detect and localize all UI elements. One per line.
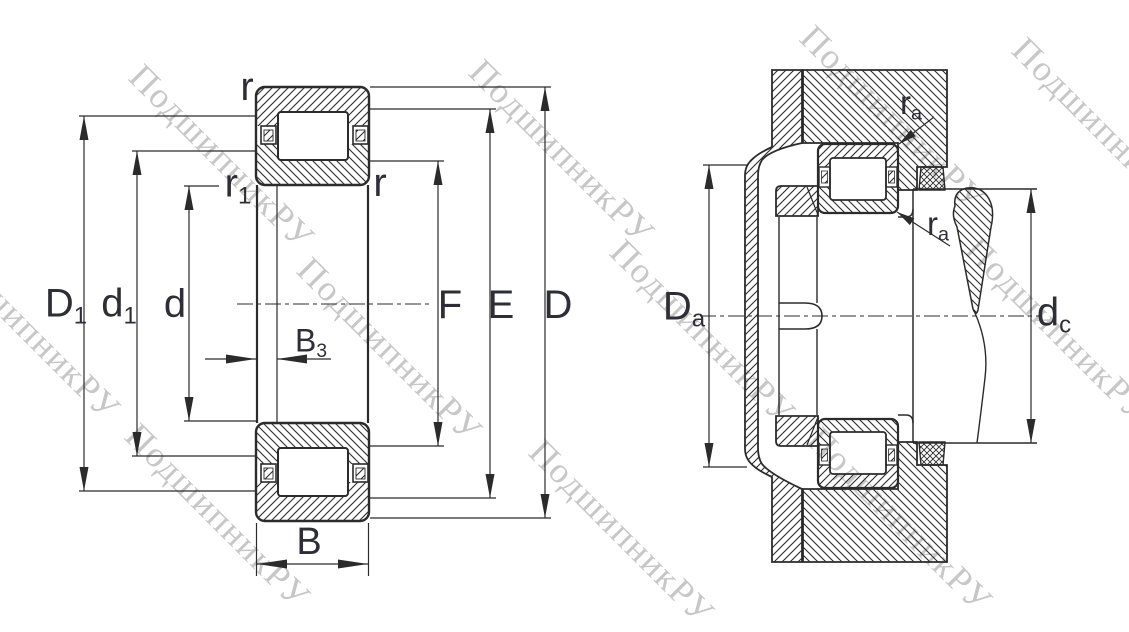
cage-hatch (889, 449, 895, 461)
label-D: D (544, 285, 573, 325)
label-B: B (296, 523, 321, 561)
inner-ring-hatch (256, 423, 369, 464)
label-B3: B3 (295, 325, 327, 362)
label-E: E (488, 285, 515, 325)
seal-ring-bottom (919, 442, 945, 465)
label-dc: dc (1037, 293, 1071, 338)
cage-hatch (822, 449, 828, 461)
inner-ring-hatch (256, 144, 369, 185)
roller-top (278, 112, 348, 160)
label-r-right: r (373, 163, 386, 203)
label-r-top: r (240, 67, 253, 107)
cage-hatch (822, 171, 828, 183)
outer-ring-hatch (256, 87, 369, 126)
outer-ring-hatch (256, 482, 369, 521)
shaft-break-curve (975, 313, 986, 443)
shaft-break-section (953, 188, 992, 314)
roller-bottom (278, 448, 348, 496)
roller-top (830, 158, 886, 200)
label-ra-top: ra (900, 86, 922, 124)
right-view-mounting (700, 70, 1040, 562)
label-D1: D1 (45, 284, 87, 329)
label-Da: Da (663, 287, 705, 332)
label-ra-bottom: ra (927, 207, 949, 245)
roller-bottom (830, 432, 886, 474)
seal-ring-top (919, 167, 945, 190)
spacer-ring-bottom (776, 416, 818, 446)
label-d: d (164, 284, 186, 324)
label-r1: r1 (225, 164, 252, 209)
spacer-ring-top (776, 186, 818, 216)
diagram-canvas: ПодшипникРУ ПодшипникРУ ПодшипникРУ Подш… (0, 0, 1129, 632)
label-d1: d1 (101, 284, 137, 329)
label-F: F (438, 285, 462, 325)
cage-hatch (889, 171, 895, 183)
